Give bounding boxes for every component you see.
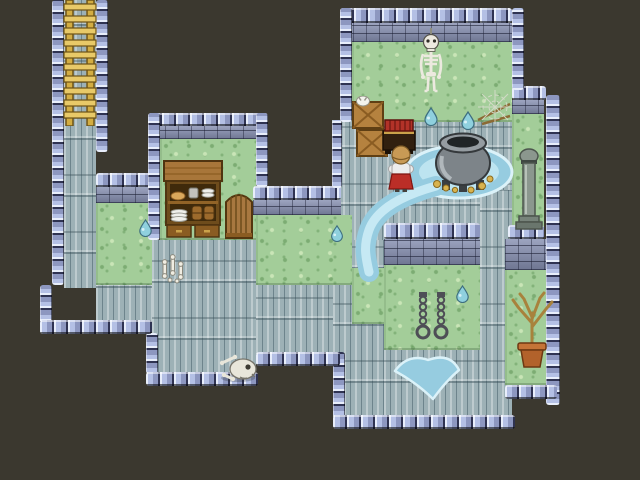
edgeh-region — [256, 352, 340, 366]
edgeh-region — [40, 320, 152, 334]
water-droplet-icon[interactable] — [137, 218, 154, 237]
stone-column[interactable] — [514, 148, 544, 230]
edgev-region — [256, 113, 268, 187]
wallface-region — [253, 200, 341, 215]
small-bones[interactable] — [158, 253, 188, 285]
hanging-skeleton[interactable] — [412, 28, 450, 100]
walltop-region — [253, 186, 341, 200]
edgev-region — [332, 120, 342, 188]
player-character[interactable] — [388, 144, 414, 192]
floor-region — [384, 350, 480, 417]
water-droplet-icon[interactable] — [460, 110, 476, 130]
wooden-gate[interactable] — [225, 190, 253, 239]
dead-potted-tree[interactable] — [506, 291, 558, 371]
edgev-region — [512, 8, 524, 90]
skull-pile[interactable] — [218, 348, 258, 384]
floor-region — [96, 280, 152, 322]
grass-region — [96, 203, 152, 285]
edgeh-region — [505, 385, 557, 399]
cauldron[interactable] — [430, 126, 496, 194]
cupboard-shelf[interactable] — [163, 160, 223, 239]
floor-region — [256, 285, 333, 354]
game-viewport[interactable] — [0, 0, 640, 480]
walltop-region — [148, 113, 268, 126]
wallface-region — [384, 239, 480, 265]
walltop-region — [384, 223, 480, 239]
edgeh-region — [333, 415, 515, 429]
wallface-region — [152, 126, 256, 139]
wallface-region — [512, 100, 544, 114]
cobweb — [476, 88, 514, 126]
edgev-region — [146, 333, 158, 374]
water-droplet-icon[interactable] — [454, 284, 471, 303]
edgev-region — [340, 8, 352, 122]
ladder[interactable] — [58, 0, 102, 126]
grass-region — [352, 268, 384, 324]
chain-shackles[interactable] — [414, 292, 450, 342]
walltop-region — [340, 8, 512, 23]
water-droplet-icon[interactable] — [329, 224, 345, 242]
water-droplet-icon[interactable] — [423, 106, 439, 126]
